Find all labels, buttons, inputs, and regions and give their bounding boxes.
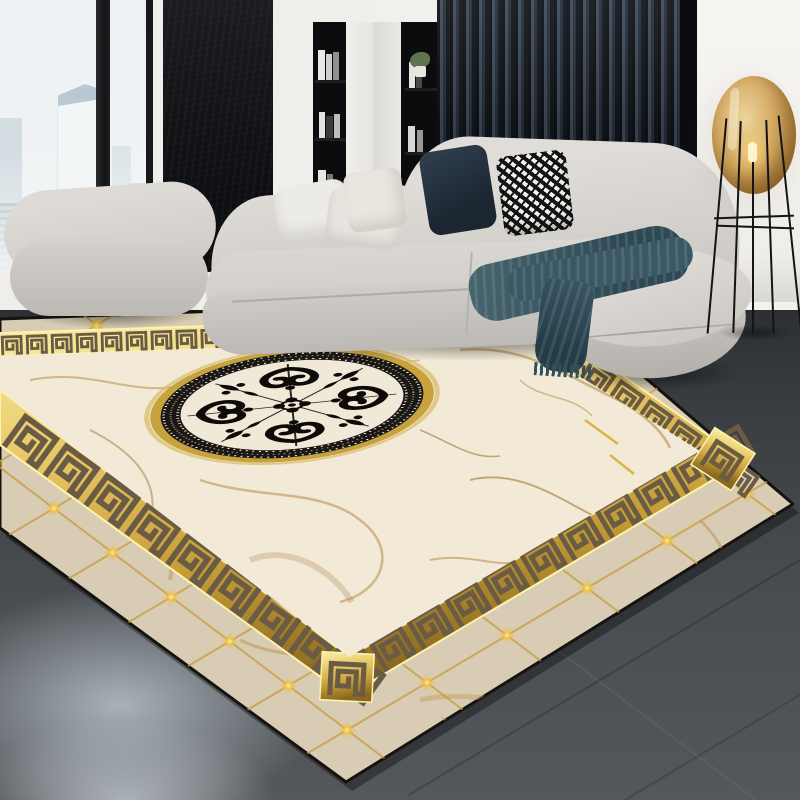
tile-grid-dot: [619, 718, 630, 729]
tile-grid-dot: [766, 399, 772, 405]
tile-grid-dot: [27, 594, 38, 605]
tile-grid-dot: [699, 671, 710, 682]
tile-grid-dot: [716, 576, 734, 594]
tile-grid-dot: [203, 727, 214, 738]
navy-pillow: [418, 143, 498, 237]
tile-grid-dot: [119, 771, 137, 789]
tile-grid-dot: [403, 772, 409, 778]
tile-grid-dot: [775, 620, 793, 638]
tile-grid-dot: [763, 396, 774, 407]
houndstooth-pillow: [495, 149, 574, 237]
tile-grid-dot: [796, 529, 800, 547]
tile-grid-dot: [701, 674, 707, 680]
tile-grid-line: [0, 534, 6, 800]
tile-grid-dot: [674, 759, 692, 777]
tile-grid-dot: [483, 724, 489, 730]
greek-key-medallion-rug: [0, 0, 800, 800]
tile-grid-dot: [720, 579, 731, 590]
tile-grid-dot: [757, 715, 768, 726]
lamp-stem: [752, 162, 754, 334]
tile-grid-dot: [264, 774, 270, 780]
tile-grid-dot: [754, 712, 772, 730]
living-room-photo: [0, 0, 800, 800]
lamp-bulb: [748, 142, 757, 163]
tile-grid-dot: [61, 727, 79, 745]
tile-grid-dot: [64, 730, 75, 741]
tile-grid-dot: [677, 763, 688, 774]
tile-grid-dot: [85, 639, 96, 650]
tile-grid-dot: [760, 718, 766, 724]
tile-grid-dot: [199, 724, 217, 742]
tile-grid-dot: [636, 623, 654, 641]
tile-grid-dot: [88, 641, 94, 647]
tile-grid-dot: [400, 769, 411, 780]
tile-grid-dot: [126, 777, 132, 783]
tile-grid-dot: [787, 307, 793, 313]
tile-grid-dot: [2, 682, 20, 700]
tile-grid-dot: [563, 677, 569, 683]
tile-grid-dot: [147, 686, 153, 692]
tile-grid-dot: [261, 772, 272, 783]
tile-grid-dot: [640, 627, 651, 638]
bench-ottoman-base: [10, 238, 208, 316]
tile-grid-dot: [560, 674, 571, 685]
tile-grid-dot: [206, 730, 212, 736]
tile-grid-dot: [23, 591, 41, 609]
tile-grid-dot: [535, 762, 553, 780]
tile-grid-dot: [67, 733, 73, 739]
tile-grid-dot: [480, 721, 491, 732]
tile-grid-dot: [643, 630, 649, 636]
tile-grid-dot: [784, 304, 795, 315]
tile-grid-dot: [5, 686, 16, 697]
tile-grid-dot: [82, 635, 100, 653]
tile-grid-dot: [615, 715, 633, 733]
tile-grid-dot: [8, 689, 14, 695]
cream-pillow: [342, 166, 408, 233]
tile-grid-dot: [781, 301, 799, 319]
tile-grid-dot: [541, 769, 547, 775]
tile-grid-dot: [556, 671, 574, 689]
tile-grid-dot: [30, 597, 36, 603]
tile-grid-dot: [539, 766, 550, 777]
tile-grid-dot: [123, 775, 134, 786]
tile-grid-dot: [723, 582, 729, 588]
tile-grid-dot: [396, 765, 414, 783]
tile-grid-dot: [621, 721, 627, 727]
tile-grid-dot: [258, 768, 276, 786]
tile-grid-dot: [779, 624, 790, 635]
tile-grid-dot: [476, 718, 494, 736]
band-corner: [320, 652, 374, 703]
tile-grid-dot: [141, 679, 159, 697]
tile-grid-dot: [695, 668, 713, 686]
tile-grid-dot: [144, 683, 155, 694]
tile-grid-dot: [680, 766, 686, 772]
tile-grid-dot: [781, 627, 787, 633]
